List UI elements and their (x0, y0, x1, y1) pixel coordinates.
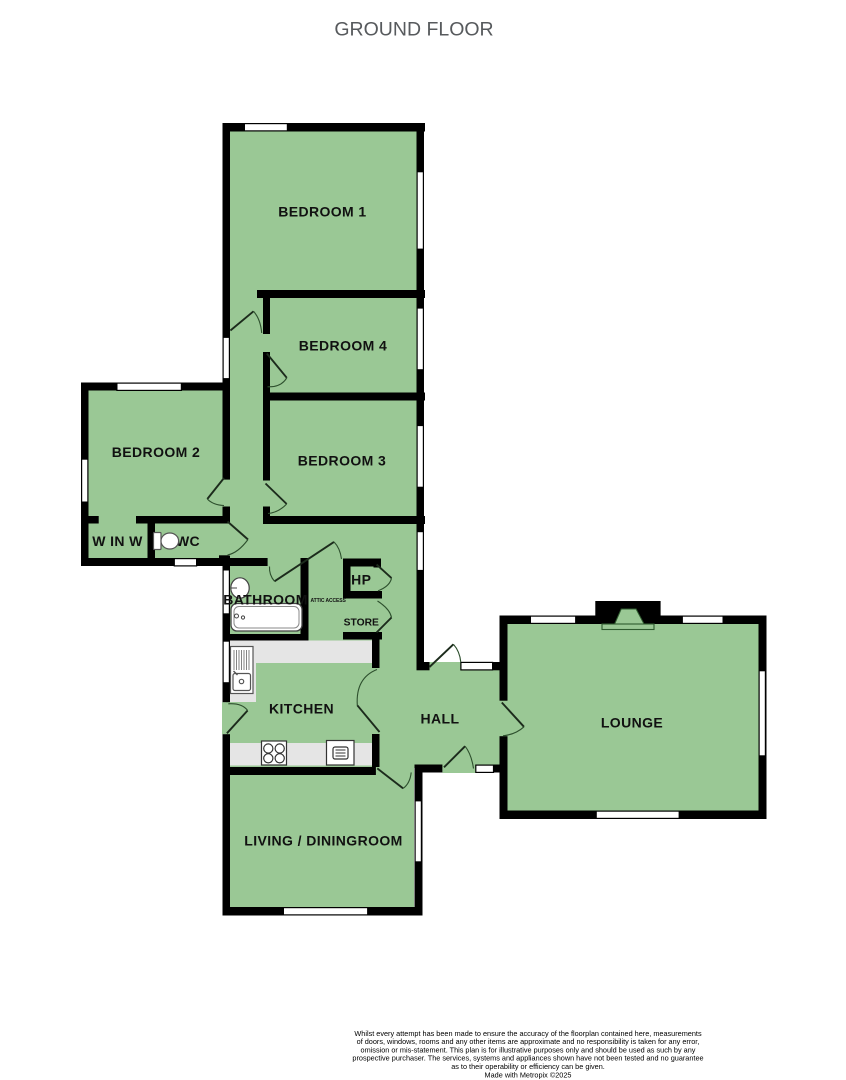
svg-text:GROUND FLOOR: GROUND FLOOR (334, 19, 493, 41)
svg-text:LIVING / DININGROOM: LIVING / DININGROOM (244, 833, 403, 849)
svg-text:LOUNGE: LOUNGE (601, 715, 663, 731)
svg-text:KITCHEN: KITCHEN (269, 701, 334, 717)
svg-text:WC: WC (176, 533, 200, 549)
svg-text:STORE: STORE (344, 617, 379, 628)
svg-text:HALL: HALL (421, 710, 460, 726)
svg-text:BEDROOM 1: BEDROOM 1 (278, 203, 366, 219)
svg-text:BATHROOM: BATHROOM (223, 592, 308, 608)
svg-text:BEDROOM 2: BEDROOM 2 (112, 444, 200, 460)
svg-text:BEDROOM 4: BEDROOM 4 (299, 338, 387, 354)
svg-text:W IN W: W IN W (92, 533, 143, 549)
svg-text:HP: HP (351, 572, 371, 588)
svg-text:ATTIC ACCESS: ATTIC ACCESS (311, 598, 347, 604)
svg-text:BEDROOM 3: BEDROOM 3 (298, 453, 386, 469)
svg-text:Made with Metropix ©2025: Made with Metropix ©2025 (485, 1070, 572, 1079)
